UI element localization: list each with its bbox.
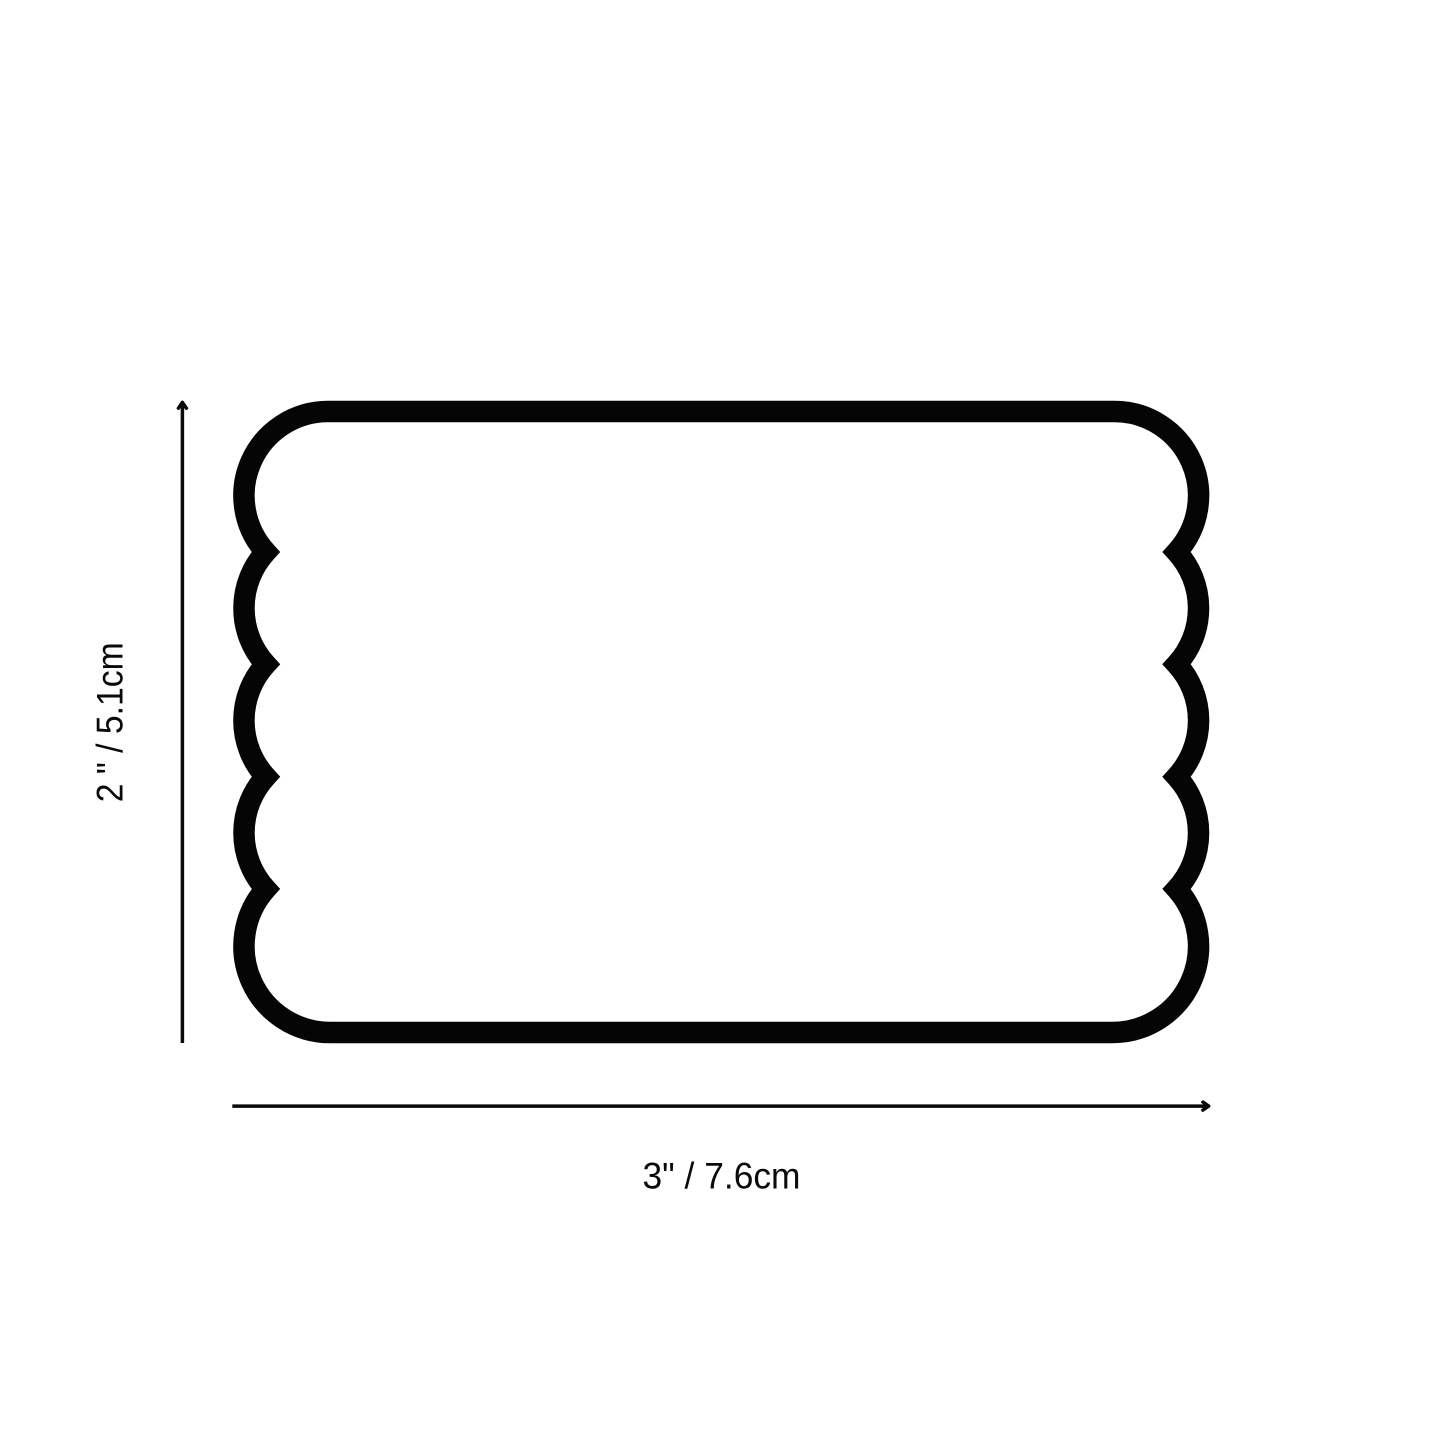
svg-text:2 " / 5.1cm: 2 " / 5.1cm [90,642,131,802]
svg-text:3" / 7.6cm: 3" / 7.6cm [643,1156,801,1197]
